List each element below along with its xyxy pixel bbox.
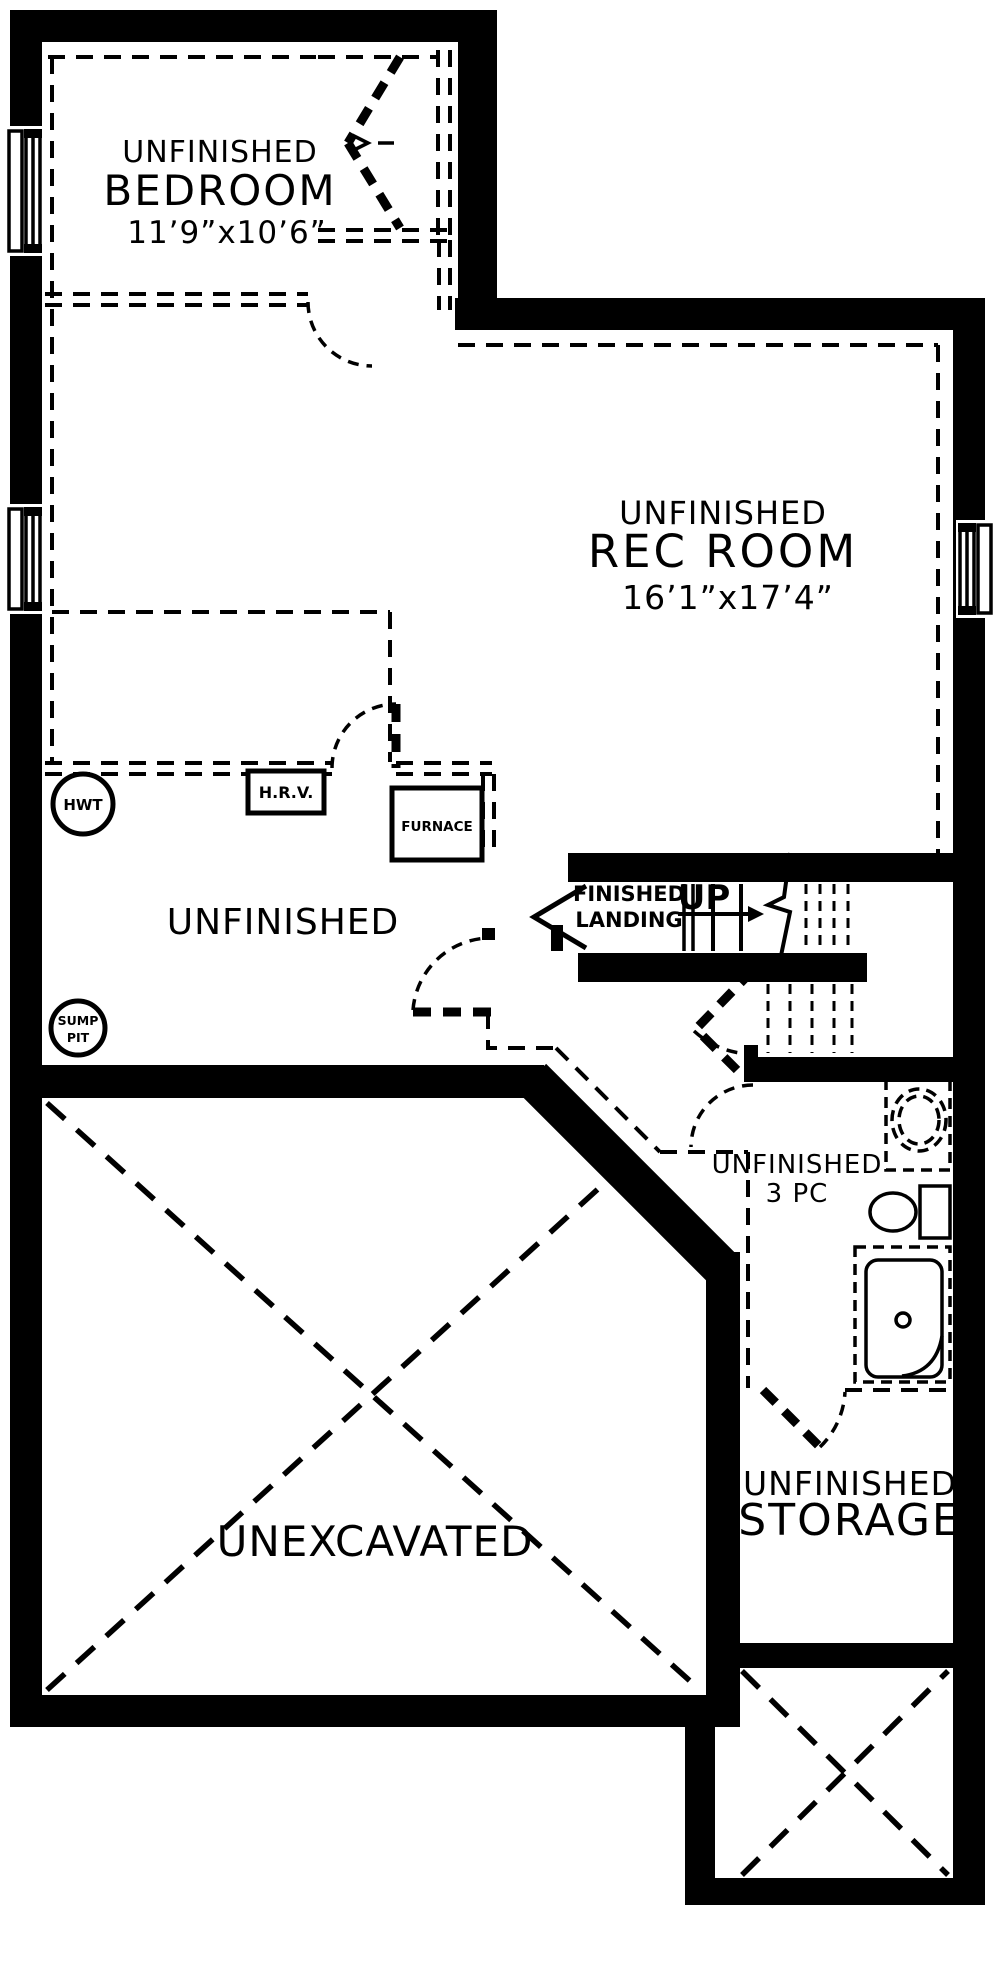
bath-fixtures xyxy=(855,1072,950,1382)
bath-label-2: 3 PC xyxy=(766,1179,829,1209)
closet-bifold-bottom xyxy=(348,143,400,228)
bath-door-swing xyxy=(691,1085,753,1147)
bedroom-dims: 11’9”x10’6” xyxy=(127,215,327,251)
wall-bedroom-east xyxy=(458,10,497,330)
stair-door-swing xyxy=(694,1031,751,1054)
room-labels: UNFINISHED BEDROOM 11’9”x10’6” UNFINISHE… xyxy=(103,135,961,1566)
bedroom-door-swing xyxy=(308,302,372,366)
storage-door-swing xyxy=(820,1392,845,1447)
wall-recroom-top xyxy=(455,298,985,330)
wall-stair-top xyxy=(568,853,953,882)
window-main-left xyxy=(6,504,44,614)
storage-door-leaf xyxy=(763,1390,820,1447)
wall-unexcavated-east xyxy=(706,1252,740,1727)
bedroom-label-2: BEDROOM xyxy=(103,166,336,215)
recroom-label-2: REC ROOM xyxy=(588,525,858,578)
shower-seat xyxy=(902,1336,942,1376)
sump-label-1: SUMP xyxy=(58,1013,99,1028)
sump-label-2: PIT xyxy=(67,1030,90,1045)
toilet-bowl xyxy=(870,1193,916,1231)
coldroom-cross xyxy=(742,1671,948,1875)
window-recroom-right xyxy=(956,520,994,618)
utility-label: UNFINISHED xyxy=(167,902,400,943)
landing-label-2: LANDING xyxy=(575,908,682,932)
bedroom-label-1: UNFINISHED xyxy=(122,135,317,170)
wall-left xyxy=(10,10,42,1727)
utility-door-stub xyxy=(488,1012,556,1048)
wall-top xyxy=(10,10,497,42)
basement-door-swing xyxy=(413,938,491,1010)
unexcavated-cross xyxy=(47,1103,700,1690)
wall-unexcavated-top xyxy=(10,1065,544,1098)
unexcavated-label: UNEXCAVATED xyxy=(217,1517,534,1566)
wall-unexcavated-bottom xyxy=(10,1695,740,1727)
storage-label-2: STORAGE xyxy=(738,1495,961,1546)
utility-door-swing xyxy=(332,704,396,768)
wall-bath-north xyxy=(744,1057,953,1082)
wall-coldroom-bottom xyxy=(685,1878,985,1905)
recroom-dims: 16’1”x17’4” xyxy=(622,578,834,617)
closet-bifold-top xyxy=(348,57,400,143)
hrv-label: H.R.V. xyxy=(259,783,314,802)
furnace-label: FURNACE xyxy=(401,819,472,835)
wall-storage-bottom xyxy=(738,1643,953,1668)
bath-label-1: UNFINISHED xyxy=(712,1150,883,1180)
floor-plan: HWT H.R.V. FURNACE SUMP PIT UNFINISHED B… xyxy=(0,0,1000,1964)
wall-unexcavated-diagonal xyxy=(532,1078,726,1272)
walls xyxy=(10,10,985,1905)
up-arrow-head xyxy=(748,906,764,922)
hwt-label: HWT xyxy=(63,796,103,814)
shower-base xyxy=(866,1260,942,1377)
landing-label-1: FINISHED xyxy=(573,882,685,906)
up-label: UP xyxy=(678,878,731,918)
window-bedroom-left xyxy=(6,126,44,256)
wall-stair-bottom xyxy=(578,953,867,982)
toilet-tank xyxy=(920,1186,950,1238)
shower-drain xyxy=(896,1313,910,1327)
sump-pit xyxy=(51,1001,105,1055)
sink-bowl-inner xyxy=(899,1096,939,1144)
closet-bifold-arrow xyxy=(352,135,368,151)
